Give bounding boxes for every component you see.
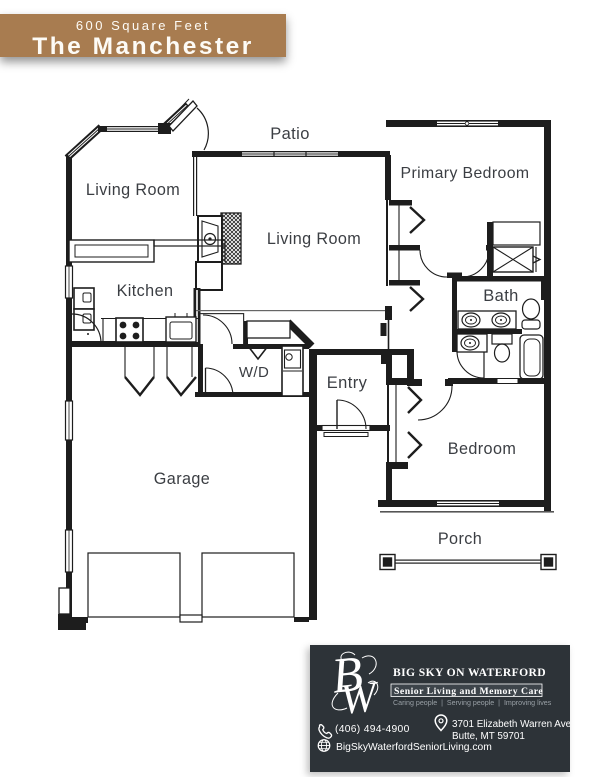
svg-text:Kitchen: Kitchen bbox=[117, 282, 174, 300]
svg-text:Entry: Entry bbox=[327, 374, 368, 392]
svg-text:Butte, MT 59701: Butte, MT 59701 bbox=[452, 731, 525, 742]
svg-text:BIG SKY ON WATERFORD: BIG SKY ON WATERFORD bbox=[393, 666, 546, 679]
svg-text:Caring people | Serving peop: Caring people | Serving people | Improvi… bbox=[393, 699, 552, 707]
svg-text:Living Room: Living Room bbox=[267, 230, 361, 248]
svg-text:Porch: Porch bbox=[438, 530, 482, 548]
svg-text:W: W bbox=[338, 673, 383, 724]
svg-text:Bath: Bath bbox=[483, 287, 519, 305]
svg-text:Primary Bedroom: Primary Bedroom bbox=[401, 165, 530, 182]
svg-text:Garage: Garage bbox=[154, 470, 210, 488]
svg-text:Living Room: Living Room bbox=[86, 181, 180, 199]
svg-text:Senior Living and Memory Care: Senior Living and Memory Care bbox=[394, 686, 543, 697]
svg-text:(406) 494-4900: (406) 494-4900 bbox=[335, 724, 410, 735]
svg-text:Patio: Patio bbox=[270, 125, 310, 143]
svg-text:BigSkyWaterfordSeniorLiving.co: BigSkyWaterfordSeniorLiving.com bbox=[336, 742, 492, 753]
svg-text:Bedroom: Bedroom bbox=[448, 440, 516, 458]
svg-text:3701 Elizabeth Warren Ave.: 3701 Elizabeth Warren Ave. bbox=[452, 719, 570, 730]
svg-text:W/D: W/D bbox=[239, 364, 269, 381]
